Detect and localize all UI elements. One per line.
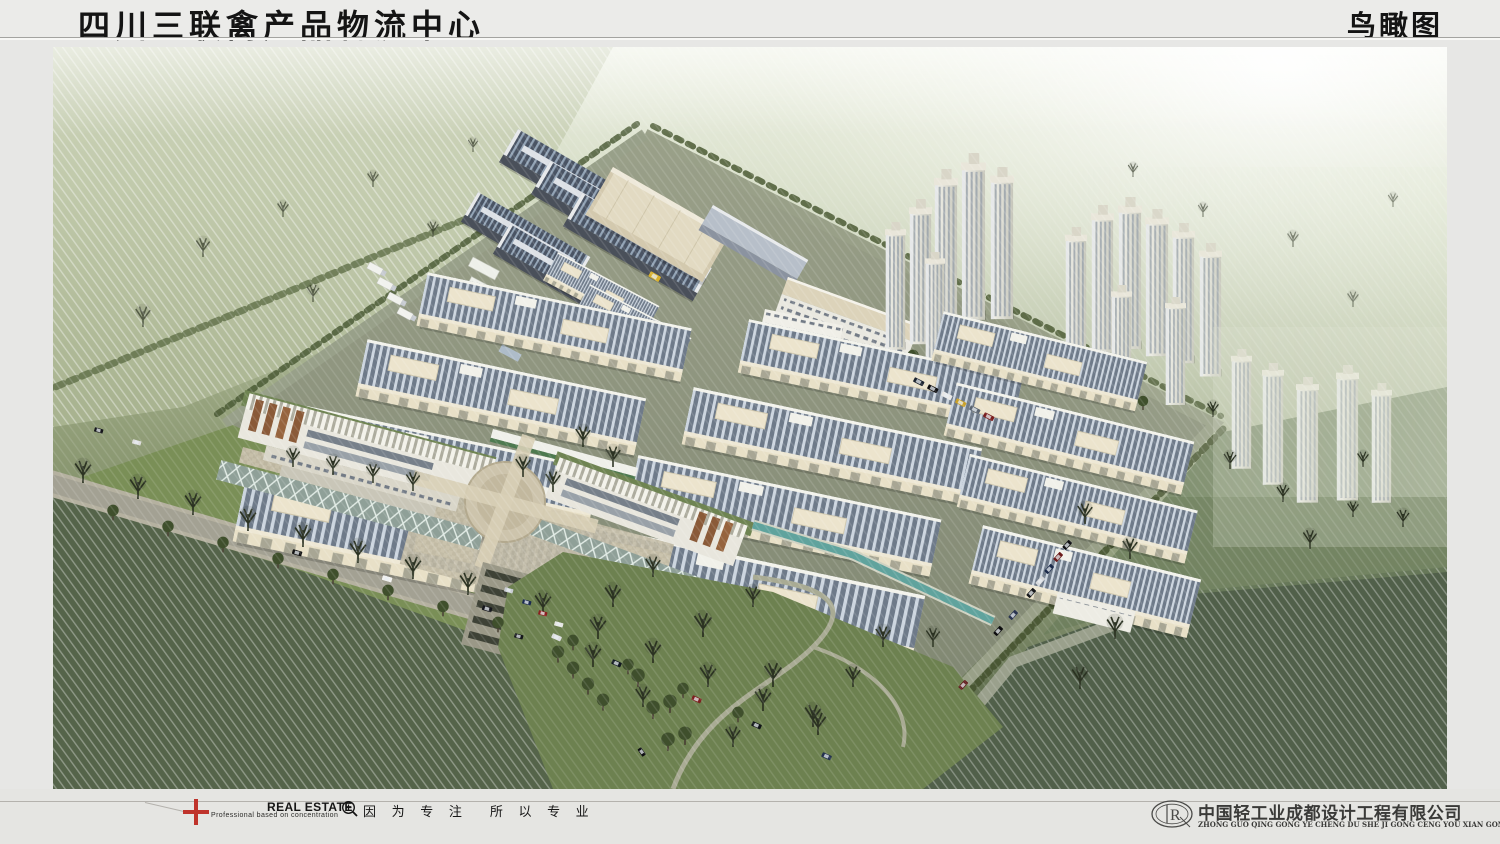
magnifier-zoom-icon [341,800,359,818]
page-title: 四川三联禽产品物流中心 [78,1,485,47]
header-separator-highlight [0,38,1500,40]
title-bar: 四川三联禽产品物流中心 鸟瞰图 [0,0,1500,38]
logo-monogram: R [1170,807,1181,824]
company-pinyin: ZHONG GUO QING GONG YE CHENG DU SHE JI G… [1198,820,1500,829]
rendering-canvas [53,47,1447,789]
cross-vertical-bar [194,799,198,825]
footer-slogan: 因 为 专 注所 以 专 业 [363,801,595,820]
aerial-rendering [53,47,1447,789]
slogan-left: 因 为 专 注 [363,804,468,819]
oval-monogram-logo: R [1150,799,1196,831]
atmosphere [53,47,1447,789]
slogan-right: 所 以 专 业 [490,804,595,819]
red-cross-logo [183,799,209,825]
brand-label: REAL ESTATE [267,800,353,814]
